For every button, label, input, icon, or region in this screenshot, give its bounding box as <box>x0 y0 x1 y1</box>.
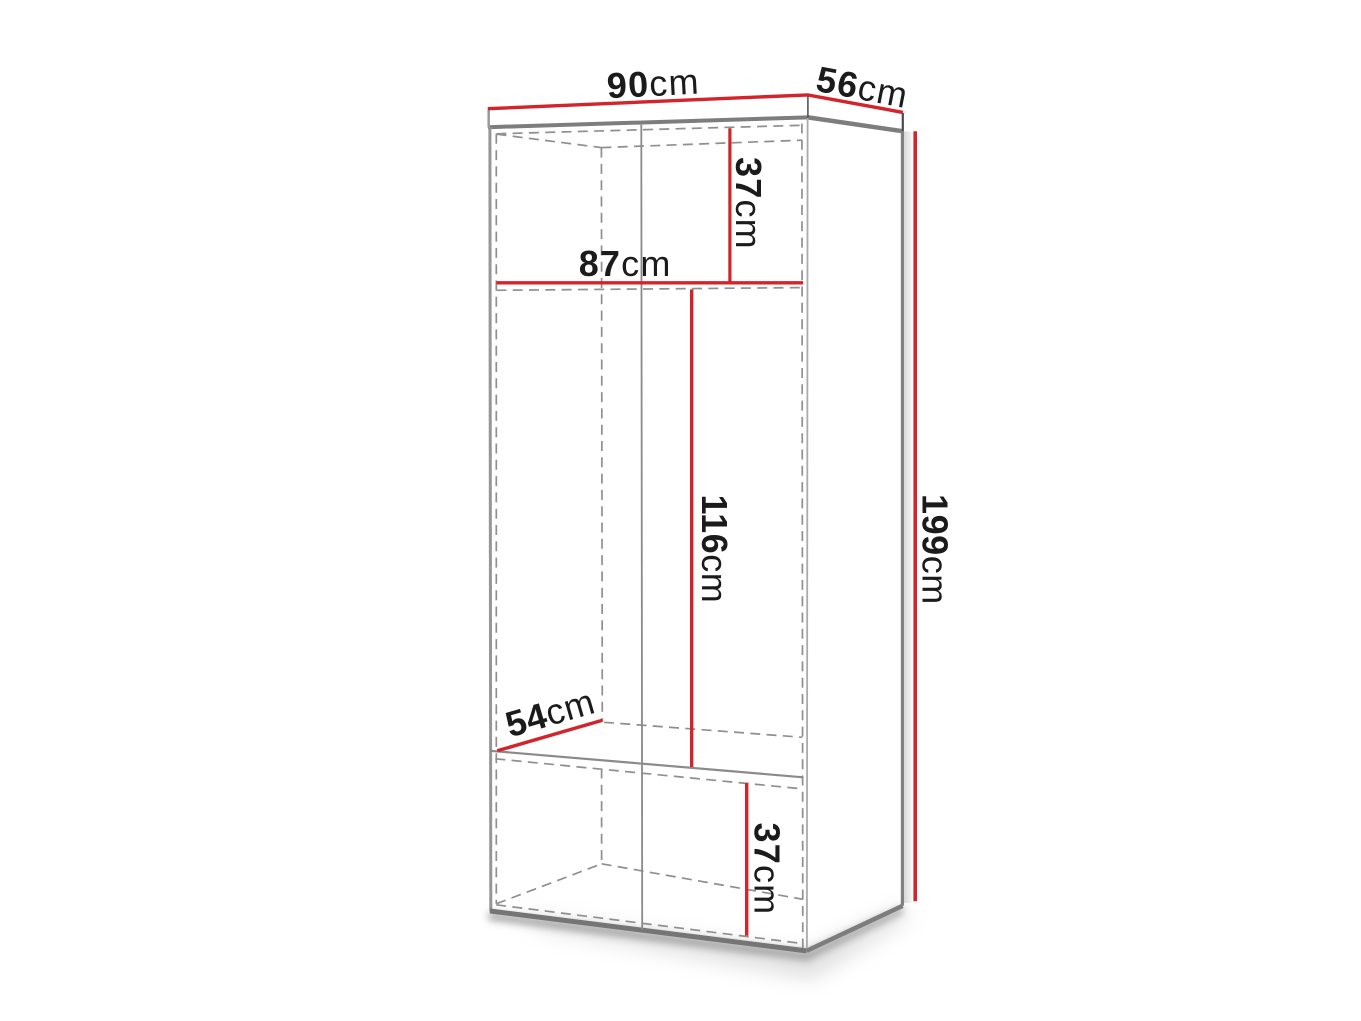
svg-text:37cm: 37cm <box>728 157 769 250</box>
svg-text:199cm: 199cm <box>914 494 955 605</box>
svg-text:90cm: 90cm <box>606 60 701 106</box>
svg-text:37cm: 37cm <box>747 823 788 916</box>
svg-text:116cm: 116cm <box>694 495 735 604</box>
svg-text:87cm: 87cm <box>579 243 672 284</box>
